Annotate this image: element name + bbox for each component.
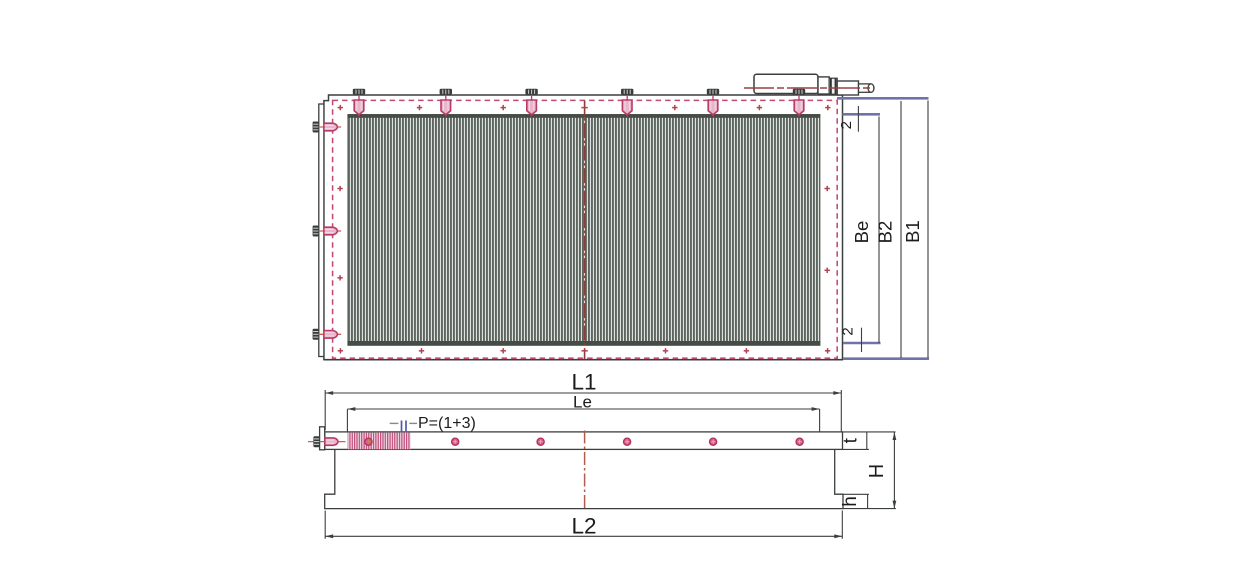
svg-text:P=(1+3): P=(1+3) — [418, 415, 476, 432]
svg-text:B2: B2 — [874, 221, 895, 244]
svg-text:Le: Le — [573, 393, 592, 412]
svg-text:L2: L2 — [571, 514, 596, 539]
svg-text:2: 2 — [838, 121, 855, 129]
svg-text:H: H — [866, 464, 888, 478]
svg-text:L1: L1 — [571, 370, 596, 395]
svg-text:Be: Be — [851, 221, 872, 244]
svg-text:t: t — [840, 437, 861, 443]
svg-text:2: 2 — [840, 327, 857, 335]
svg-text:B1: B1 — [902, 220, 923, 243]
svg-text:h: h — [840, 496, 861, 507]
